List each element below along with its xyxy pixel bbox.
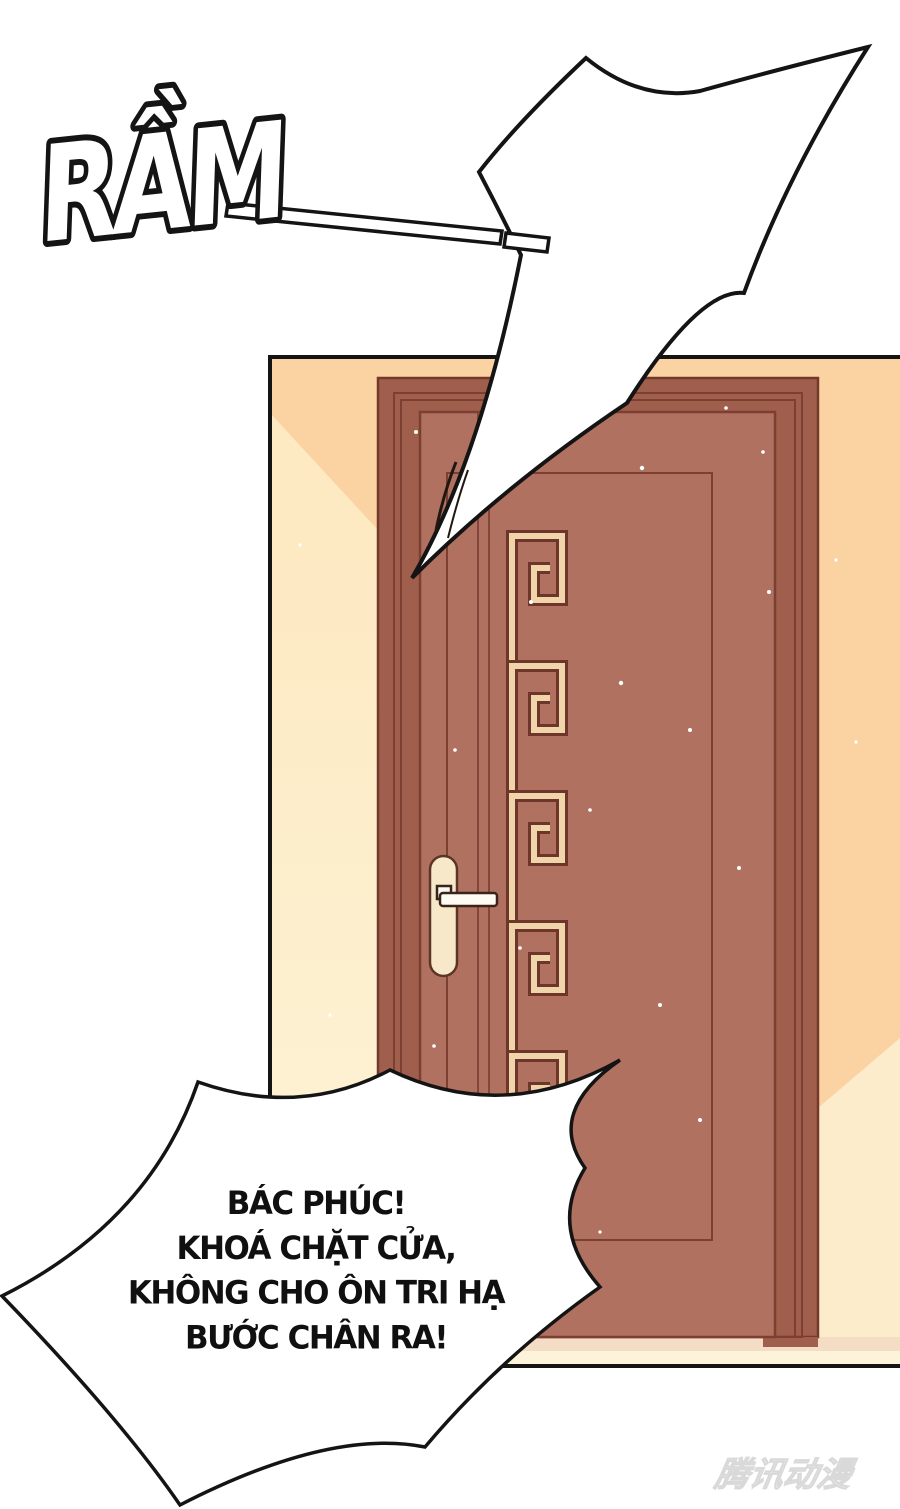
watermark: 腾讯动漫 bbox=[712, 1447, 857, 1496]
sfx-text: RẦM bbox=[37, 75, 287, 274]
door-handle-lever[interactable] bbox=[440, 893, 497, 906]
speech-bubble-text: BÁC PHÚC! KHOÁ CHẶT CỬA, KHÔNG CHO ÔN TR… bbox=[96, 1182, 536, 1361]
door-frame-foot bbox=[763, 1337, 818, 1347]
comic-page: RẦM BÁC PHÚC! KHOÁ CHẶT CỬA, KHÔNG CHO Ô… bbox=[0, 0, 900, 1509]
speech-line: BƯỚC CHÂN RA! bbox=[96, 1316, 536, 1361]
speech-line: KHÔNG CHO ÔN TRI HẠ bbox=[96, 1271, 536, 1316]
speech-line: KHOÁ CHẶT CỬA, bbox=[96, 1227, 536, 1272]
door-handle-plate bbox=[430, 856, 457, 976]
motion-dash-short bbox=[504, 233, 549, 252]
speech-line: BÁC PHÚC! bbox=[96, 1182, 536, 1227]
